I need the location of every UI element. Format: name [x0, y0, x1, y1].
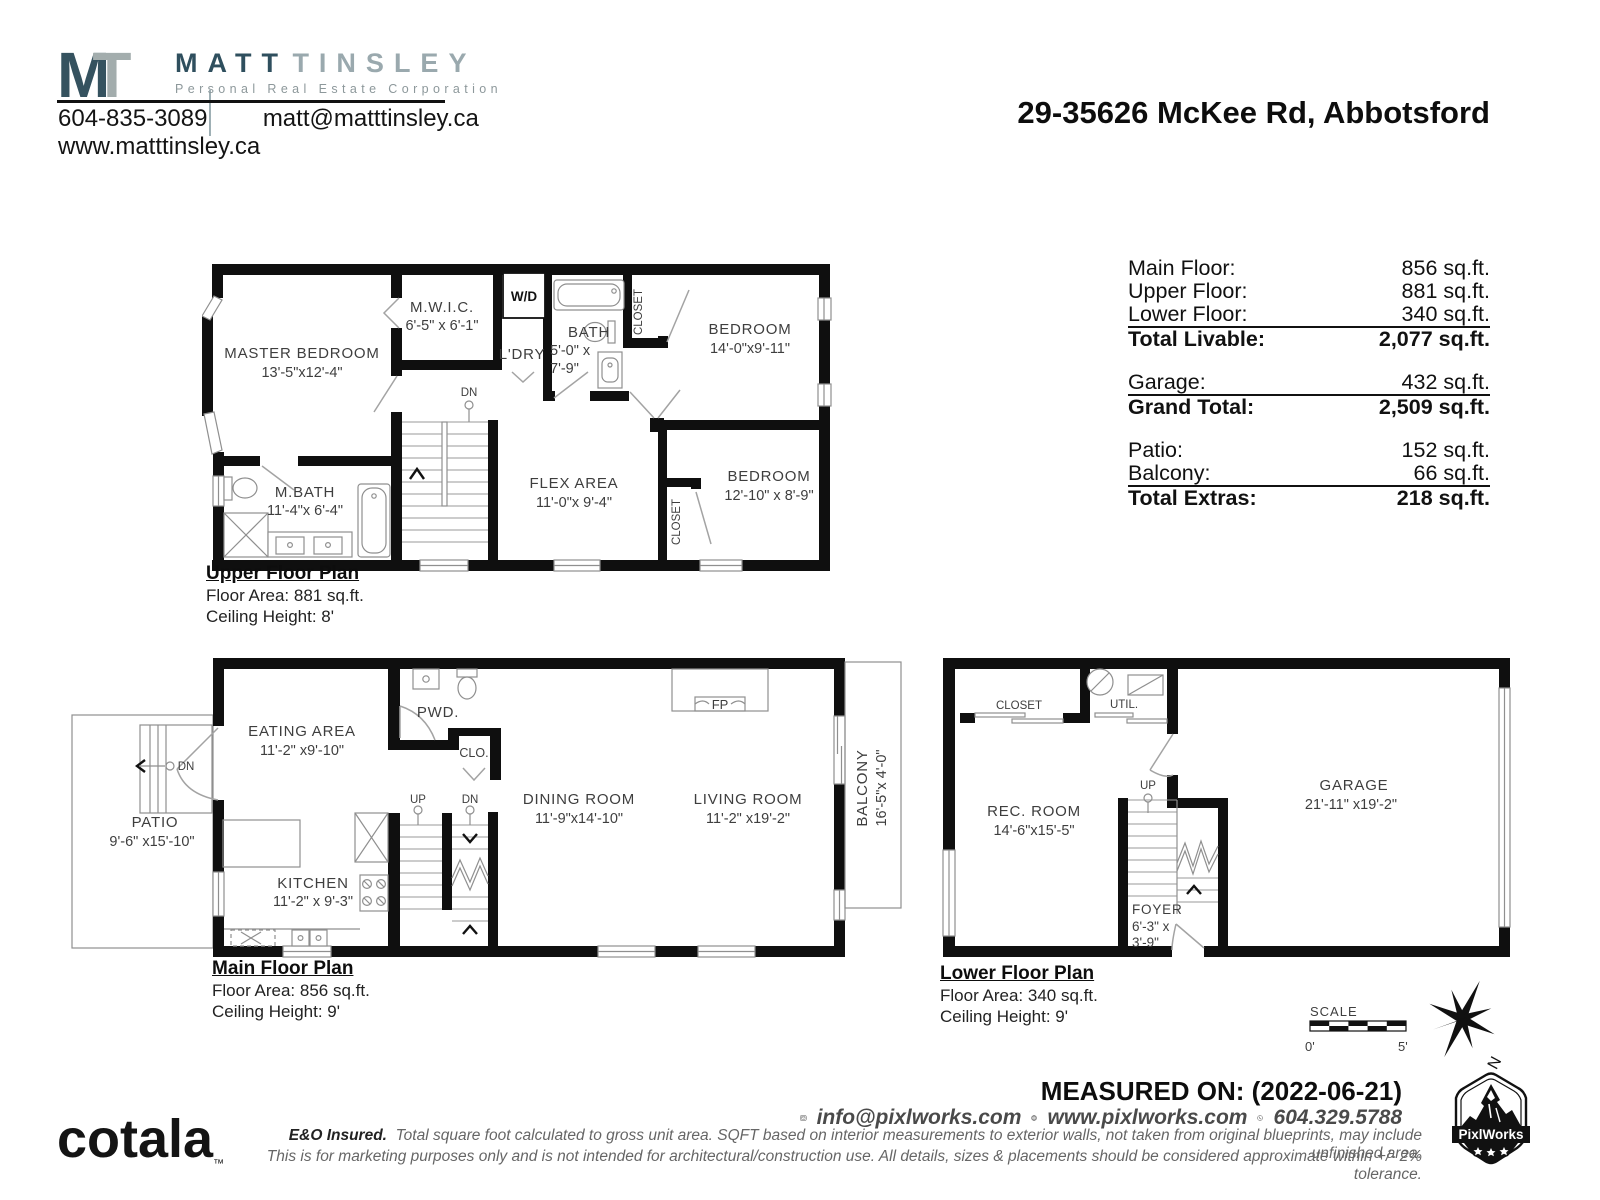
- washer-dryer-label: W/D: [511, 289, 537, 304]
- double-sink: [292, 930, 327, 946]
- table-row: Upper Floor:881 sq.ft.: [1128, 280, 1490, 303]
- room-label: DINING ROOM: [523, 791, 635, 808]
- svg-text:12'-10" x 8'-9": 12'-10" x 8'-9": [724, 488, 813, 504]
- water-heater: [1087, 669, 1113, 695]
- svg-text:14'-0"x9'-11": 14'-0"x9'-11": [710, 341, 790, 357]
- closet-label: CLOSET: [633, 289, 645, 335]
- svg-text:9'-6" x15'-10": 9'-6" x15'-10": [109, 834, 194, 850]
- double-vanity: [268, 532, 352, 557]
- room-label: M.BATH: [275, 484, 335, 501]
- toilet: [224, 477, 257, 500]
- room-label: PWD.: [417, 704, 459, 721]
- svg-text:11'-2" x 9'-3": 11'-2" x 9'-3": [273, 894, 353, 910]
- pixlworks-wordmark: PixlWorks: [1458, 1127, 1523, 1142]
- table-row: Patio:152 sq.ft.: [1128, 439, 1490, 462]
- room-labels: MASTER BEDROOM 13'-5"x12'-4" M.W.I.C. 6'…: [224, 289, 813, 545]
- sink: [413, 669, 439, 689]
- stairs: [402, 401, 488, 542]
- fridge: [355, 813, 388, 862]
- utility-fixtures: [1087, 669, 1163, 695]
- scale-label: SCALE: [1310, 1004, 1358, 1019]
- sliding-door: [834, 716, 845, 784]
- sink: [598, 352, 622, 388]
- fireplace-label: FP: [712, 697, 729, 712]
- svg-text:5'-0" x: 5'-0" x: [550, 343, 591, 359]
- room-label: EATING AREA: [248, 723, 356, 740]
- svg-text:11'-9"x14'-10": 11'-9"x14'-10": [535, 811, 623, 827]
- furnace: [1128, 675, 1163, 695]
- main-floor-caption: Main Floor Plan Floor Area: 856 sq.ft. C…: [212, 958, 370, 1022]
- envelope-icon: [800, 1107, 807, 1129]
- table-row: Garage:432 sq.ft.: [1128, 371, 1490, 396]
- listing-address: 29-35626 McKee Rd, Abbotsford: [950, 95, 1490, 131]
- area-summary-table: Main Floor:856 sq.ft. Upper Floor:881 sq…: [1128, 257, 1490, 510]
- header-rule: [57, 100, 445, 103]
- lower-floor-caption: Lower Floor Plan Floor Area: 340 sq.ft. …: [940, 963, 1098, 1027]
- svg-text:11'-2" x19'-2": 11'-2" x19'-2": [706, 811, 790, 827]
- disclaimer-line-2: This is for marketing purposes only and …: [215, 1148, 1422, 1184]
- svg-text:7'-9": 7'-9": [550, 361, 579, 377]
- floor-plan-sheet: MT MATT TINSLEY Personal Real Estate Cor…: [0, 0, 1600, 1200]
- island: [223, 820, 300, 867]
- svg-text:11'-4"x 6'-4": 11'-4"x 6'-4": [267, 503, 343, 519]
- svg-text:3'-9": 3'-9": [1132, 935, 1159, 950]
- pixlworks-logo: PixlWorks: [1434, 1066, 1548, 1176]
- dn-label: DN: [178, 761, 195, 773]
- closet-label: CLOSET: [671, 499, 683, 545]
- patio: [72, 715, 213, 948]
- room-label: FOYER: [1132, 902, 1183, 917]
- room-label: REC. ROOM: [987, 803, 1081, 820]
- dn-label: DN: [461, 387, 478, 399]
- upper-floor-plan: MASTER BEDROOM 13'-5"x12'-4" M.W.I.C. 6'…: [202, 260, 842, 578]
- agent-logo: MT MATT TINSLEY Personal Real Estate Cor…: [57, 38, 657, 108]
- svg-text:14'-6"x15'-5": 14'-6"x15'-5": [993, 823, 1074, 839]
- up-label: UP: [1140, 780, 1156, 792]
- svg-text:6'-3" x: 6'-3" x: [1132, 919, 1170, 934]
- room-label: LIVING ROOM: [694, 791, 803, 808]
- room-label: MASTER BEDROOM: [224, 345, 379, 362]
- main-floor-plan: PATIO 9'-6" x15'-10" DN EATING AREA 11'-…: [55, 638, 915, 964]
- room-label: BEDROOM: [727, 468, 810, 485]
- closet-label: CLO.: [459, 746, 488, 760]
- svg-text:11'-2" x9'-10": 11'-2" x9'-10": [260, 743, 344, 759]
- corner-shower: [224, 513, 268, 557]
- room-label: BEDROOM: [708, 321, 791, 338]
- svg-text:13'-5"x12'-4": 13'-5"x12'-4": [261, 365, 342, 381]
- toilet: [457, 669, 477, 699]
- agent-phone: 604-835-3089: [58, 105, 207, 132]
- cooktop: [360, 875, 388, 911]
- sliding-door: [975, 713, 1063, 723]
- powder-room-fixtures: [413, 669, 477, 699]
- util-label: UTIL.: [1110, 699, 1138, 711]
- agent-last-name: TINSLEY: [292, 48, 476, 78]
- dishwasher: [231, 930, 275, 946]
- sliding-door: [1095, 713, 1167, 723]
- svg-text:16'-5"x 4'-0": 16'-5"x 4'-0": [874, 749, 890, 826]
- svg-text:21'-11" x19'-2": 21'-11" x19'-2": [1305, 797, 1397, 813]
- scale-end: 5': [1398, 1039, 1408, 1054]
- measured-on: MEASURED ON: (2022-06-21): [800, 1076, 1402, 1107]
- agent-first-name: MATT: [175, 48, 288, 78]
- bathtub: [358, 484, 390, 557]
- dn-label: DN: [462, 794, 479, 806]
- room-label: PATIO: [132, 814, 179, 831]
- scale-start: 0': [1305, 1039, 1315, 1054]
- up-label: UP: [410, 794, 426, 806]
- upper-floor-caption: Upper Floor Plan Floor Area: 881 sq.ft. …: [206, 563, 364, 627]
- table-row-grand-total: Grand Total:2,509 sq.ft.: [1128, 396, 1490, 419]
- table-row: Main Floor:856 sq.ft.: [1128, 257, 1490, 280]
- cotala-logo: cotala™: [57, 1108, 224, 1170]
- svg-text:6'-5" x 6'-1": 6'-5" x 6'-1": [405, 318, 478, 334]
- stairs: [1128, 794, 1218, 914]
- table-row: Balcony:66 sq.ft.: [1128, 462, 1490, 487]
- room-label: KITCHEN: [277, 875, 348, 892]
- closet-label: CLOSET: [996, 700, 1042, 712]
- room-label: M.W.I.C.: [410, 299, 474, 316]
- room-label: FLEX AREA: [530, 475, 619, 492]
- room-label: L'DRY: [499, 346, 546, 363]
- bathtub: [554, 280, 624, 310]
- table-row-total-livable: Total Livable:2,077 sq.ft.: [1128, 328, 1490, 351]
- garage-door: [1499, 688, 1510, 927]
- room-labels: CLOSET UTIL. REC. ROOM 14'-6"x15'-5" UP …: [987, 699, 1397, 950]
- agent-website: www.matttinsley.ca: [58, 133, 260, 161]
- lower-floor-plan: CLOSET UTIL. REC. ROOM 14'-6"x15'-5" UP …: [922, 638, 1514, 964]
- balcony-label: BALCONY: [854, 749, 871, 826]
- room-label: BATH: [568, 324, 610, 341]
- table-row: Lower Floor:340 sq.ft.: [1128, 303, 1490, 328]
- agent-contact-line: 604-835-3089 matt@matttinsley.ca: [58, 105, 479, 133]
- room-label: GARAGE: [1320, 777, 1389, 794]
- agent-subtitle: Personal Real Estate Corporation: [175, 82, 502, 96]
- scale-bar: [1310, 1021, 1406, 1031]
- table-row-total-extras: Total Extras:218 sq.ft.: [1128, 487, 1490, 510]
- agent-email: matt@matttinsley.ca: [263, 105, 479, 132]
- svg-text:11'-0"x 9'-4": 11'-0"x 9'-4": [536, 495, 612, 511]
